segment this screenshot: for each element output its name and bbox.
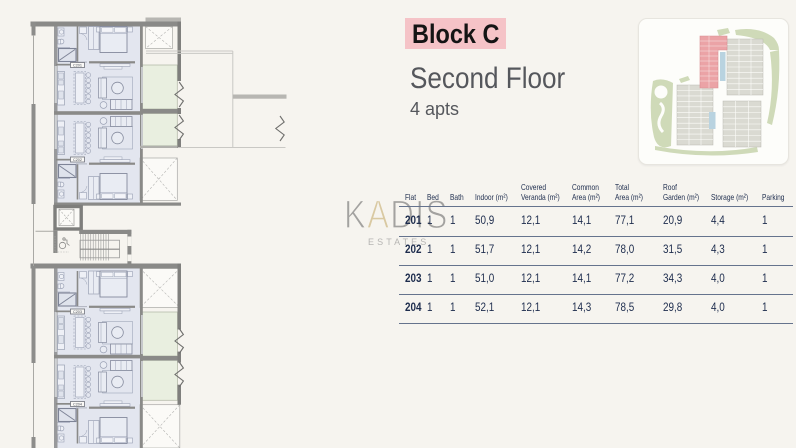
svg-text:C203: C203	[73, 310, 82, 314]
svg-text:C204: C204	[73, 403, 82, 407]
svg-text:C202: C202	[73, 158, 82, 162]
svg-text:C201: C201	[73, 64, 82, 68]
